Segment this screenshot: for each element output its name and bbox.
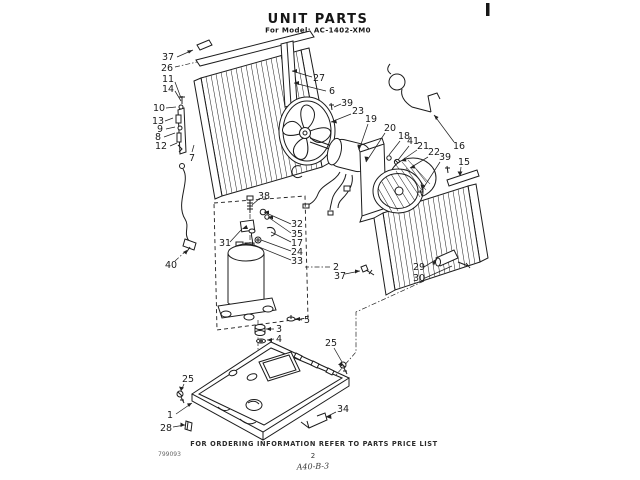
exploded-view-diagram: UNIT PARTS For Model: AC-1402-XM0 bbox=[0, 0, 640, 480]
mount-bolt bbox=[387, 156, 391, 160]
callout-19: 19 bbox=[365, 114, 377, 125]
page-title: UNIT PARTS bbox=[268, 12, 369, 27]
callout-38: 38 bbox=[258, 191, 270, 202]
callout-33: 33 bbox=[291, 256, 303, 267]
callout-12: 12 bbox=[155, 141, 167, 152]
doc-number: 799093 bbox=[158, 451, 181, 458]
callout-39-blower: 39 bbox=[439, 152, 451, 163]
compressor-hardware bbox=[240, 196, 275, 249]
registration-mark bbox=[486, 3, 490, 16]
rail-clip bbox=[197, 40, 212, 50]
footer-note: FOR ORDERING INFORMATION REFER TO PARTS … bbox=[190, 440, 438, 448]
hold-down-clip-28 bbox=[185, 421, 192, 431]
model-subtitle: For Model: AC-1402-XM0 bbox=[265, 27, 371, 35]
callout-20: 20 bbox=[384, 123, 396, 134]
callout-26: 26 bbox=[161, 63, 173, 74]
callout-4: 4 bbox=[276, 334, 282, 345]
screw-37-mid bbox=[361, 265, 374, 275]
callout-29: 29 bbox=[413, 262, 425, 273]
callout-30: 30 bbox=[413, 273, 425, 284]
pan-bracket-34 bbox=[301, 413, 327, 428]
callout-14: 14 bbox=[162, 84, 174, 95]
base-pan bbox=[192, 342, 349, 440]
callout-27: 27 bbox=[313, 73, 325, 84]
callout-1: 1 bbox=[167, 410, 173, 421]
projection-line bbox=[336, 281, 424, 375]
coil-screw bbox=[445, 166, 450, 173]
screw-25-left bbox=[177, 391, 184, 403]
capillary-tube bbox=[180, 164, 197, 254]
callout-16: 16 bbox=[453, 141, 465, 152]
page-number: 2 bbox=[311, 452, 315, 460]
callout-25-left: 25 bbox=[182, 374, 194, 385]
callout-15: 15 bbox=[458, 157, 470, 168]
callout-25-right: 25 bbox=[325, 338, 337, 349]
callout-23: 23 bbox=[352, 106, 364, 117]
callout-5: 5 bbox=[304, 315, 310, 326]
callout-37-top: 37 bbox=[162, 52, 174, 63]
callout-37-mid: 37 bbox=[334, 271, 346, 282]
handwritten-reference: A40-B-3 bbox=[296, 461, 330, 471]
callout-28: 28 bbox=[160, 423, 172, 434]
fan-screw bbox=[329, 103, 334, 110]
coil-top-bar bbox=[447, 170, 479, 186]
callout-7: 7 bbox=[189, 153, 195, 164]
motor-wires bbox=[303, 172, 352, 215]
parts-diagram-page: UNIT PARTS For Model: AC-1402-XM0 bbox=[0, 0, 640, 480]
callout-10: 10 bbox=[153, 103, 165, 114]
callout-34: 34 bbox=[337, 404, 349, 415]
callout-40: 40 bbox=[165, 260, 177, 271]
callout-31: 31 bbox=[219, 238, 231, 249]
refrigerant-tube bbox=[388, 64, 440, 112]
callout-6: 6 bbox=[329, 86, 335, 97]
